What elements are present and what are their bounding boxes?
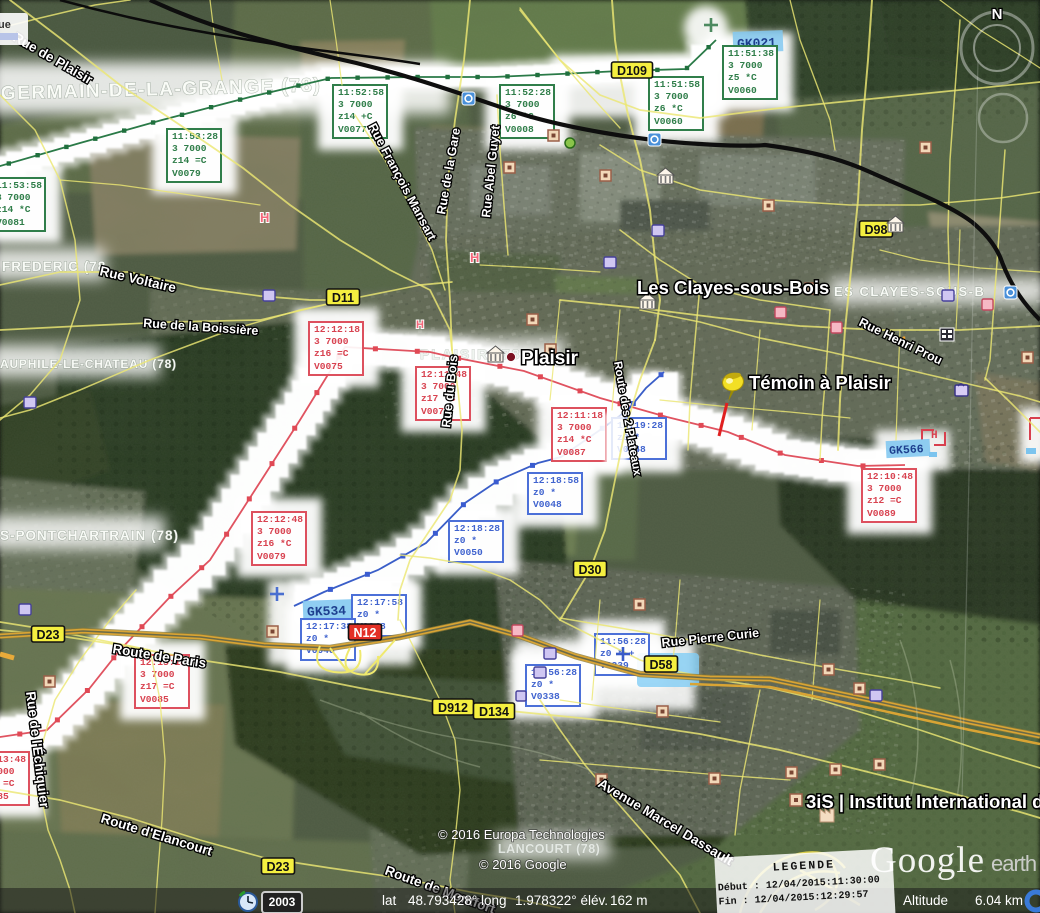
svg-text:Rue de l'Échiquier: Rue de l'Échiquier bbox=[23, 691, 52, 810]
svg-text:H: H bbox=[260, 210, 269, 225]
svg-text:© 2016 Google: © 2016 Google bbox=[479, 857, 567, 872]
svg-text:3iS | Institut International d: 3iS | Institut International de bbox=[806, 791, 1040, 812]
svg-text:D30: D30 bbox=[579, 563, 602, 577]
svg-text:Rue Henri Prou: Rue Henri Prou bbox=[857, 315, 945, 367]
svg-text:earth: earth bbox=[991, 851, 1036, 876]
svg-text:H: H bbox=[470, 250, 479, 265]
svg-text:D109: D109 bbox=[617, 64, 647, 78]
svg-text:N: N bbox=[992, 6, 1003, 23]
svg-text:Rue François Mansart: Rue François Mansart bbox=[365, 121, 439, 244]
svg-text:Route d'Elancourt: Route d'Elancourt bbox=[99, 811, 215, 859]
svg-text:Route de Paris: Route de Paris bbox=[112, 641, 208, 671]
svg-text:Plaisir: Plaisir bbox=[521, 348, 579, 369]
svg-text:Rue de la Boissière: Rue de la Boissière bbox=[143, 316, 259, 338]
svg-text:Témoin à Plaisir: Témoin à Plaisir bbox=[749, 372, 891, 393]
svg-text:N12: N12 bbox=[354, 626, 377, 640]
svg-text:D58: D58 bbox=[650, 658, 673, 672]
svg-text:D134: D134 bbox=[479, 705, 509, 719]
svg-text:D912: D912 bbox=[438, 701, 468, 715]
svg-text:D11: D11 bbox=[332, 291, 354, 305]
svg-text:© 2016 Europa Technologies: © 2016 Europa Technologies bbox=[438, 827, 605, 842]
svg-text:D98: D98 bbox=[865, 223, 888, 237]
svg-text:H: H bbox=[416, 319, 424, 331]
svg-text:Rue de la Gare: Rue de la Gare bbox=[434, 127, 463, 216]
svg-text:Les Clayes-sous-Bois: Les Clayes-sous-Bois bbox=[637, 277, 829, 298]
svg-text:D23: D23 bbox=[37, 628, 60, 642]
svg-text:Rue Voltaire: Rue Voltaire bbox=[98, 263, 178, 295]
svg-text:Avenue Marcel Dassault: Avenue Marcel Dassault bbox=[595, 776, 736, 869]
svg-text:Route des 2 Plateaux: Route des 2 Plateaux bbox=[611, 360, 643, 477]
svg-text:D23: D23 bbox=[267, 860, 290, 874]
svg-text:ue: ue bbox=[0, 19, 11, 31]
svg-text:Rue Abel Guyet: Rue Abel Guyet bbox=[479, 124, 503, 218]
